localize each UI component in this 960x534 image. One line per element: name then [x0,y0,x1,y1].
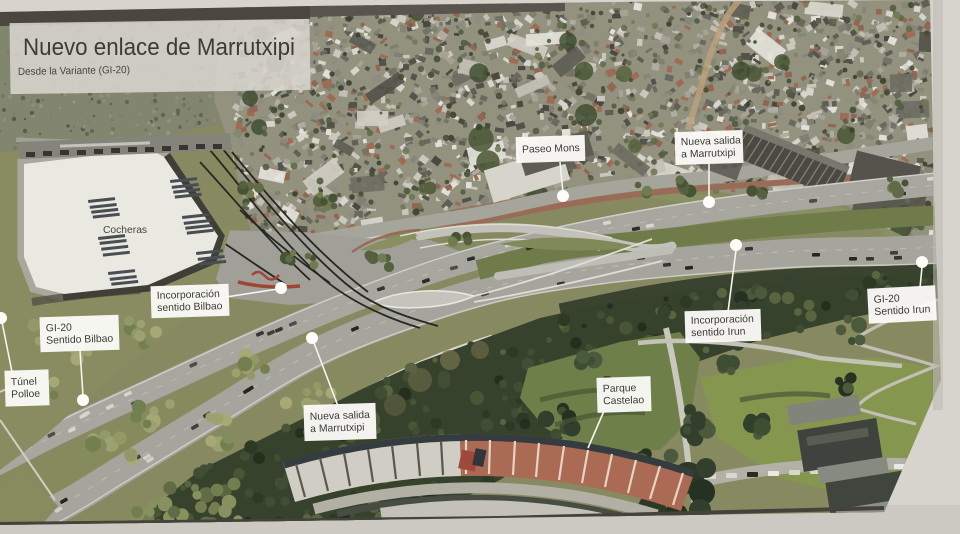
svg-text:a Marrutxipi: a Marrutxipi [681,148,736,161]
svg-text:Parque: Parque [603,383,637,395]
svg-text:Sentido Bilbao: Sentido Bilbao [46,334,114,347]
svg-text:Incorporación: Incorporación [691,314,754,327]
svg-text:Incorporación: Incorporación [157,289,220,302]
svg-text:GI-20: GI-20 [873,293,900,305]
svg-text:Paseo Mons: Paseo Mons [522,143,580,156]
svg-text:sentido Irun: sentido Irun [691,326,746,339]
svg-text:Nueva salida: Nueva salida [681,135,742,148]
svg-text:Polloe: Polloe [11,389,40,401]
svg-text:Nueva salida: Nueva salida [310,410,371,423]
svg-text:Castelao: Castelao [603,395,645,407]
svg-text:a Marrutxipi: a Marrutxipi [310,422,365,435]
svg-text:sentido Bilbao: sentido Bilbao [157,301,223,314]
svg-text:Desde la Variante (GI-20): Desde la Variante (GI-20) [18,64,130,78]
svg-text:GI-20: GI-20 [46,323,73,335]
svg-text:Nuevo enlace de Marrutxipi: Nuevo enlace de Marrutxipi [23,34,295,61]
svg-text:Túnel: Túnel [11,377,37,389]
